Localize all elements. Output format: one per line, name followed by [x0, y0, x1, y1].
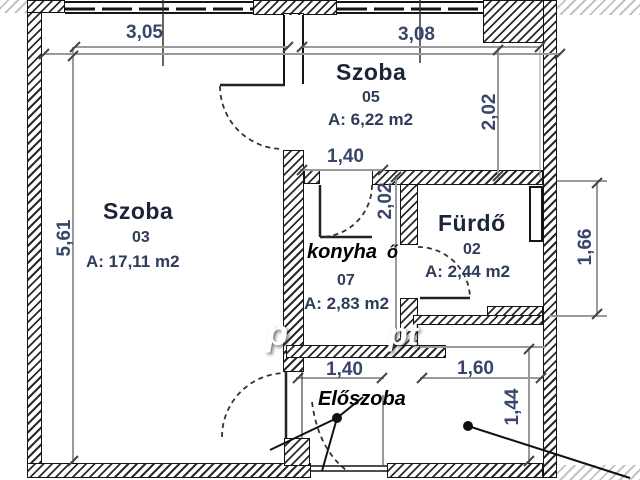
door-arc-room03-hall: [222, 373, 286, 437]
dim-kitchen-height: 2,02: [375, 173, 395, 229]
watermark-fragment-left: p: [266, 312, 288, 354]
kitchen-annotation-fragment: ő: [387, 242, 398, 263]
room05-name: Szoba: [336, 59, 406, 86]
dim-room05-height: 2,02: [479, 84, 499, 140]
dim-left-height: 5,61: [54, 210, 74, 266]
floor-plan: Szoba 03 A: 17,11 m2 Szoba 05 A: 6,22 m2…: [0, 0, 640, 480]
door-arc-kitchen: [320, 185, 372, 237]
kitchen-id: 07: [337, 272, 355, 290]
dim-kitchen-door-width: 1,40: [327, 146, 364, 168]
kitchen-area: A: 2,83 m2: [304, 294, 389, 314]
room05-area: A: 6,22 m2: [328, 110, 413, 130]
room03-name: Szoba: [103, 198, 173, 225]
bath-name: Fürdő: [438, 210, 506, 237]
dim-hall-height: 1,44: [502, 379, 522, 435]
room03-area: A: 17,11 m2: [86, 252, 180, 272]
dim-hall-width-right: 1,60: [457, 358, 494, 380]
dim-bath-height: 1,66: [575, 219, 595, 275]
window-top-left: [65, 2, 253, 13]
dim-top-width-left: 3,05: [126, 22, 163, 44]
hall-annotation: Előszoba: [318, 388, 406, 411]
room05-id: 05: [362, 89, 380, 107]
door-arc-room03-room05: [220, 86, 283, 149]
bath-area: A: 2,44 m2: [425, 262, 510, 282]
window-top-right: [337, 2, 483, 13]
kitchen-annotation: konyha: [307, 241, 377, 264]
watermark-fragment-right: pt: [388, 316, 418, 353]
bath-id: 02: [463, 241, 481, 259]
dim-hall-width-left: 1,40: [326, 359, 363, 381]
door-arc-entrance: [312, 402, 346, 470]
room03-id: 03: [132, 229, 150, 247]
dim-top-width-right: 3,08: [398, 24, 435, 46]
